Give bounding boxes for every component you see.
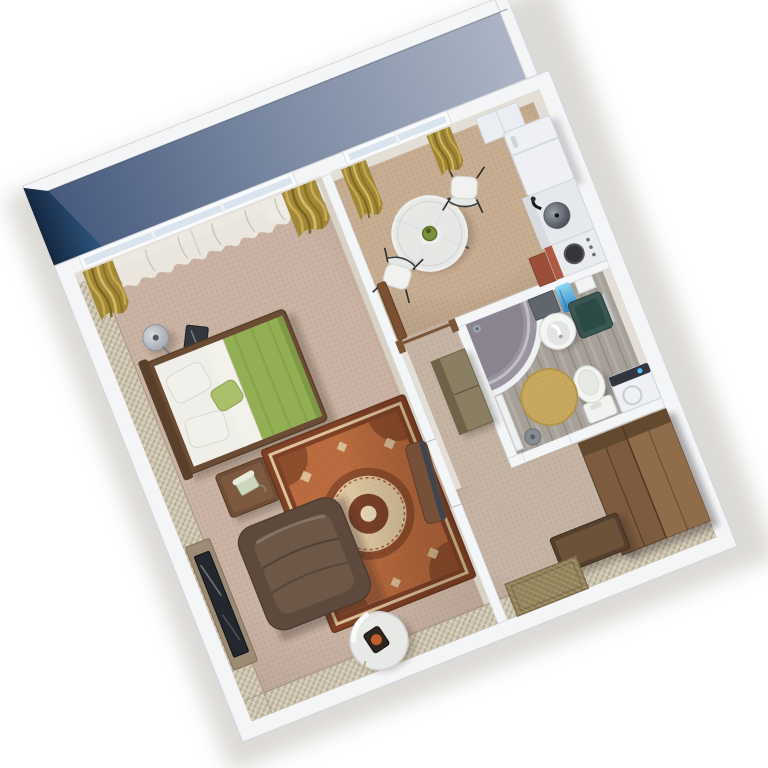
floorplan-3d-svg — [0, 0, 768, 768]
floorplan-render — [0, 0, 768, 768]
apartment-model — [23, 0, 738, 742]
